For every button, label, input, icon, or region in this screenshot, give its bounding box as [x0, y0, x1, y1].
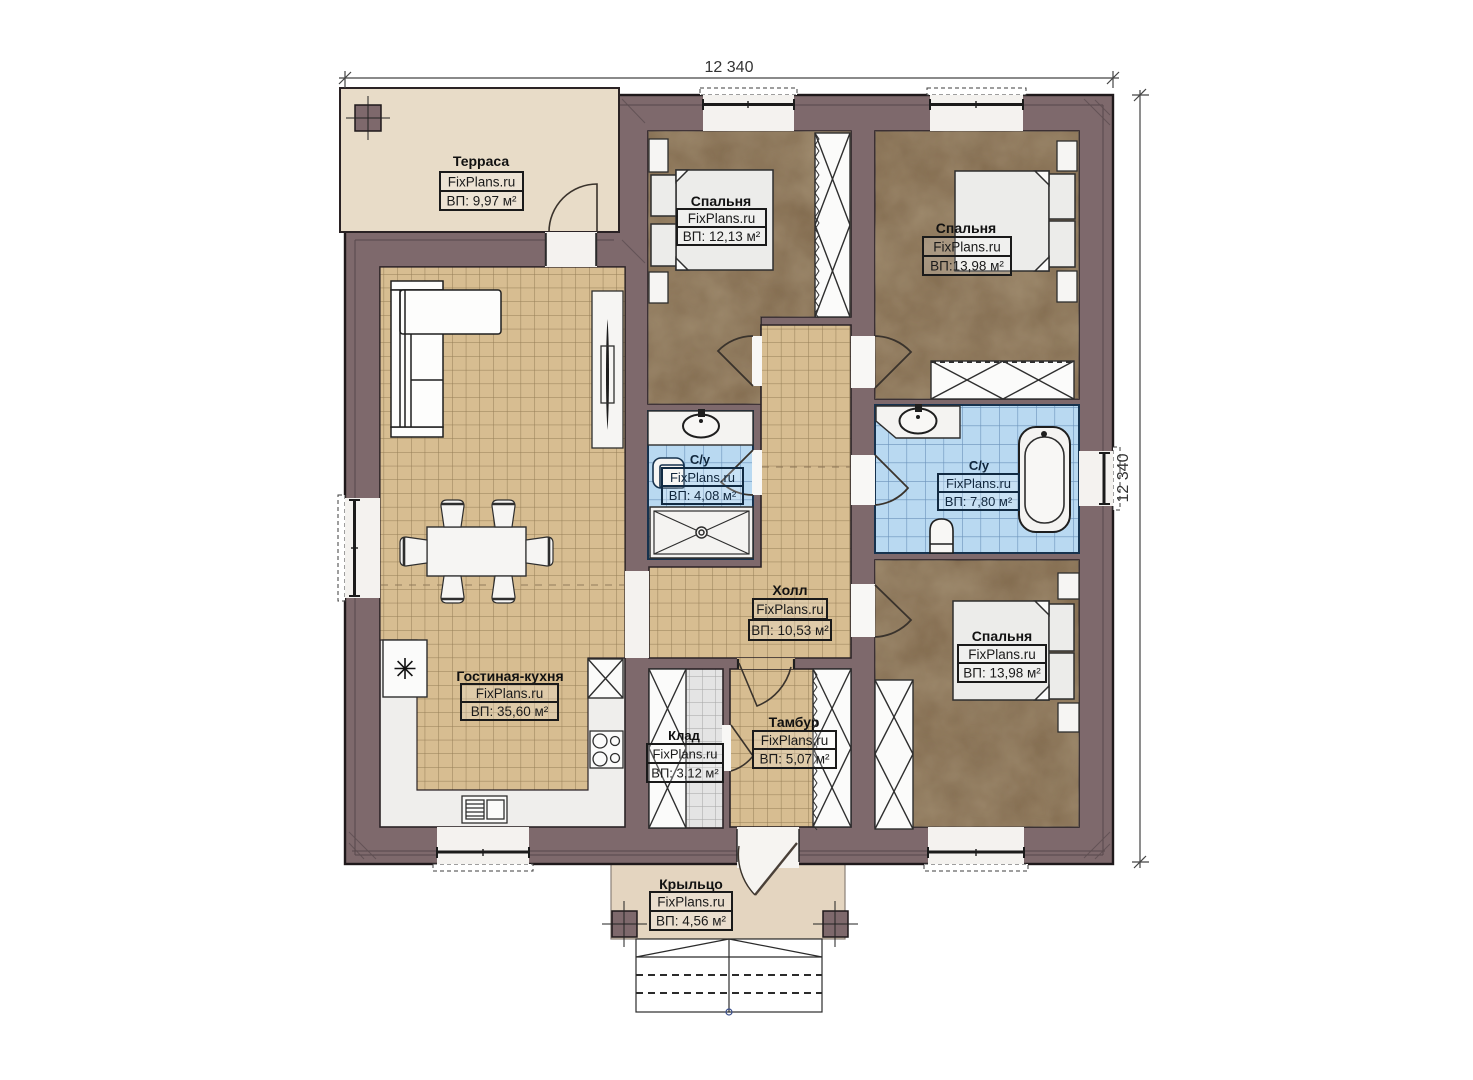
svg-text:FixPlans.ru: FixPlans.ru	[688, 211, 756, 226]
svg-text:ВП: 10,53 м²: ВП: 10,53 м²	[751, 623, 829, 638]
svg-text:ВП: 3,12 м²: ВП: 3,12 м²	[651, 766, 719, 781]
svg-text:FixPlans.ru: FixPlans.ru	[761, 733, 829, 748]
svg-text:ВП: 4,08 м²: ВП: 4,08 м²	[669, 488, 737, 503]
svg-text:FixPlans.ru: FixPlans.ru	[657, 895, 725, 910]
svg-text:ВП: 9,97 м²: ВП: 9,97 м²	[446, 194, 517, 209]
svg-text:С/у: С/у	[690, 452, 711, 467]
svg-text:FixPlans.ru: FixPlans.ru	[946, 476, 1011, 491]
svg-text:ВП: 35,60 м²: ВП: 35,60 м²	[471, 704, 549, 719]
svg-text:ВП: 12,13 м²: ВП: 12,13 м²	[683, 229, 761, 244]
svg-text:Терраса: Терраса	[453, 153, 509, 169]
svg-text:Гостиная-кухня: Гостиная-кухня	[456, 668, 563, 684]
svg-text:ВП: 4,56 м²: ВП: 4,56 м²	[656, 914, 727, 929]
svg-text:12 340: 12 340	[1115, 453, 1132, 502]
svg-text:FixPlans.ru: FixPlans.ru	[476, 686, 544, 701]
svg-text:Спальня: Спальня	[972, 628, 1032, 644]
svg-text:ВП:13,98 м²: ВП:13,98 м²	[930, 259, 1004, 274]
svg-text:FixPlans.ru: FixPlans.ru	[968, 647, 1036, 662]
svg-text:ВП: 7,80 м²: ВП: 7,80 м²	[945, 494, 1013, 509]
svg-text:FixPlans.ru: FixPlans.ru	[756, 602, 824, 617]
svg-text:ВП: 5,07 м²: ВП: 5,07 м²	[759, 752, 830, 767]
svg-text:Спальня: Спальня	[936, 220, 996, 236]
svg-text:FixPlans.ru: FixPlans.ru	[448, 175, 516, 190]
svg-text:Крыльцо: Крыльцо	[659, 876, 723, 892]
svg-text:FixPlans.ru: FixPlans.ru	[933, 240, 1001, 255]
svg-text:Спальня: Спальня	[691, 193, 751, 209]
svg-text:Тамбур: Тамбур	[769, 714, 820, 730]
svg-text:Клад: Клад	[668, 728, 700, 743]
svg-text:12 340: 12 340	[705, 59, 754, 76]
svg-text:С/у: С/у	[969, 458, 990, 473]
svg-text:Холл: Холл	[772, 582, 807, 598]
svg-text:FixPlans.ru: FixPlans.ru	[652, 747, 717, 762]
svg-text:ВП: 13,98 м²: ВП: 13,98 м²	[963, 666, 1041, 681]
svg-text:FixPlans.ru: FixPlans.ru	[670, 470, 735, 485]
